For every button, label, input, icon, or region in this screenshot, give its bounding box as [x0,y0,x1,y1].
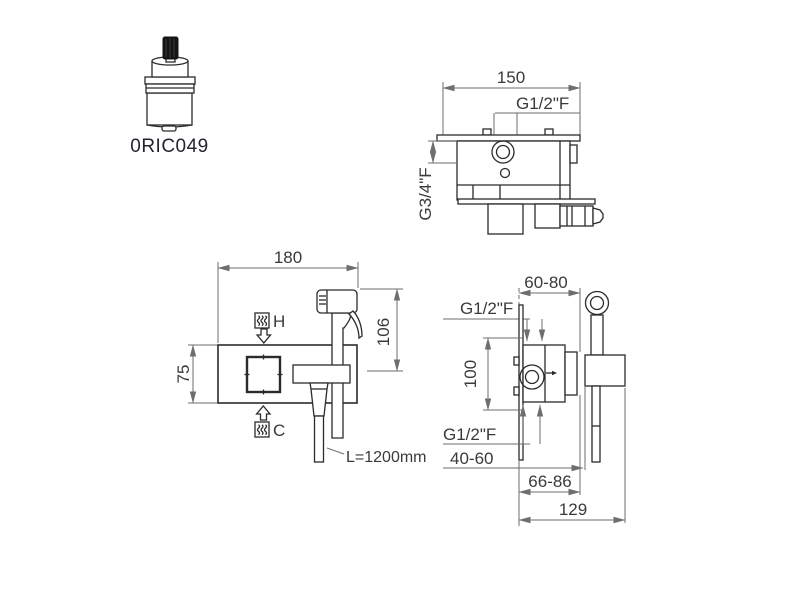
technical-drawing-page: 0RIC049 150 G1/2"F [0,0,800,600]
hot-water-icon [255,313,269,328]
hose-side [592,386,600,462]
wall-plate-edge [437,135,580,141]
side-view-top-inlet-label: G1/2"F [460,299,513,318]
hot-water-marker: H [255,312,285,343]
spray-holder-top-view [535,204,603,228]
side-view-top-inlet-callout: G1/2"F [443,299,542,341]
cold-water-icon [255,422,269,437]
hose-length-label: L=1200mm [346,449,427,466]
holder-block [585,355,625,386]
spray-head [317,290,357,313]
side-view-drawing: 60-80 G1/2"F [436,264,638,534]
front-view-spray-height-dimension: 106 [360,289,403,371]
hot-label: H [273,312,285,331]
side-view-body-height-dimension: 100 [461,338,523,410]
side-view-holder-range-dimension: 66-86 [519,395,580,495]
top-view-outlet-label: G3/4"F [416,167,435,220]
top-view-drawing: 150 G1/2"F [410,56,615,241]
spray-hose [310,383,328,462]
side-view-total-depth-value: 129 [559,500,587,519]
top-view-mixer-body [437,129,603,234]
front-view-drawing: 180 75 H [178,240,434,475]
top-view-inlet-label: G1/2"F [516,94,569,113]
front-view-spray-height-value: 106 [374,318,393,346]
side-view-bottom-outlet-label: G1/2"F [443,425,496,444]
side-view-depth-range-dimension: 60-80 [519,273,580,352]
cartridge-drawing [122,28,217,134]
hose-length-callout: L=1200mm [327,448,427,466]
side-view-wall-depth-value: 40-60 [450,449,493,468]
hose-nut-cone [310,383,328,416]
front-view-width-value: 180 [274,248,302,267]
spray-head-circle [586,292,609,315]
cold-label: C [273,421,285,440]
hose-tube [315,416,324,462]
spray-holder-bracket [293,365,350,383]
top-view-width-value: 150 [497,68,525,87]
side-view-spray-holder [585,292,625,463]
cartridge-code-label: 0RIC049 [122,136,217,158]
side-view-body-height-value: 100 [461,360,480,388]
spray-handle-side [591,315,603,355]
spray-trigger-lever [349,311,362,338]
cold-flow-up-arrow-icon [257,406,270,420]
side-view-bottom-outlet-callout: G1/2"F [443,405,540,444]
side-view-total-depth-dimension: 129 [519,388,625,523]
cartridge-stem [163,37,178,59]
valve-block [488,204,523,234]
top-view-outlet-callout: G3/4"F [416,141,457,221]
front-view-plate-height-dimension: 75 [174,345,218,403]
side-view-mixer-body [514,345,577,402]
square-control-knob [245,355,283,395]
front-view-plate-height-value: 75 [174,365,193,384]
hot-flow-down-arrow-icon [257,329,270,343]
cartridge-body [145,37,195,131]
cold-water-marker: C [255,406,285,440]
side-view-depth-range-value: 60-80 [524,273,567,292]
side-view-holder-range-value: 66-86 [528,472,571,491]
